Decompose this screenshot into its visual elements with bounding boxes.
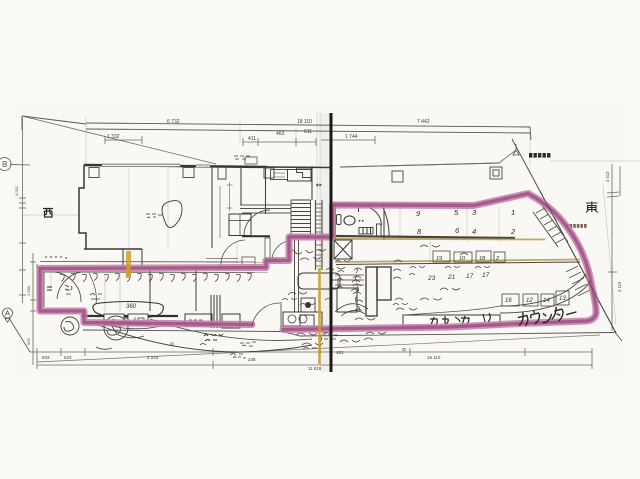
svg-text:623: 623 <box>64 355 72 360</box>
svg-text:4 119: 4 119 <box>617 281 622 292</box>
svg-text:2 233: 2 233 <box>147 355 159 360</box>
svg-text:611: 611 <box>304 129 312 135</box>
svg-text:360: 360 <box>126 304 137 310</box>
svg-text:23: 23 <box>427 275 436 282</box>
svg-text:903: 903 <box>26 338 31 345</box>
svg-text:238: 238 <box>248 357 256 362</box>
svg-text:4 513: 4 513 <box>605 171 610 182</box>
svg-text:16: 16 <box>505 298 512 304</box>
svg-text:1: 1 <box>511 208 515 217</box>
svg-text:18 110: 18 110 <box>297 119 312 125</box>
svg-text:21: 21 <box>447 274 456 281</box>
svg-text:10: 10 <box>459 256 466 262</box>
svg-text:18: 18 <box>479 256 486 262</box>
svg-text:833: 833 <box>42 355 50 360</box>
svg-text:4 511: 4 511 <box>14 186 19 196</box>
svg-text:463: 463 <box>276 131 285 137</box>
svg-text:11 818: 11 818 <box>308 366 322 371</box>
svg-text:17: 17 <box>466 273 474 280</box>
svg-text:2: 2 <box>495 256 499 262</box>
svg-text:6 732: 6 732 <box>167 119 180 125</box>
svg-text:4: 4 <box>472 227 476 236</box>
svg-text:17: 17 <box>482 272 490 279</box>
svg-text:2: 2 <box>510 227 516 236</box>
svg-text:7 442: 7 442 <box>417 119 430 125</box>
svg-text:19: 19 <box>436 256 442 262</box>
svg-text:461: 461 <box>336 350 344 355</box>
svg-text:1 030: 1 030 <box>26 285 31 296</box>
svg-text:1 332: 1 332 <box>107 134 120 140</box>
svg-text:16 110: 16 110 <box>427 355 441 360</box>
svg-text:1 744: 1 744 <box>345 134 358 140</box>
svg-text:411: 411 <box>248 136 256 142</box>
